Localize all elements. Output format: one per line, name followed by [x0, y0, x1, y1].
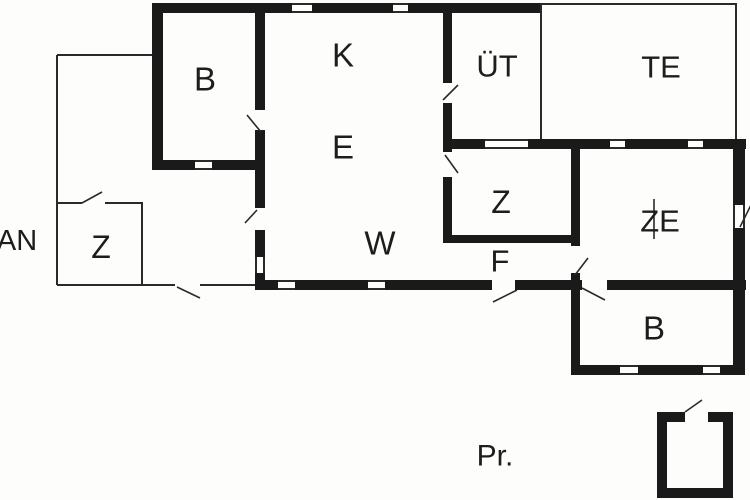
- wall: [657, 412, 667, 498]
- room-label-e: E: [332, 129, 354, 166]
- wall: [255, 3, 265, 290]
- door-opening: [443, 152, 452, 177]
- room-label-annex-z: Z: [91, 229, 111, 265]
- room-label-b-bottomright: B: [643, 310, 665, 347]
- wall: [733, 139, 745, 375]
- room-label-z-inner: Z: [491, 184, 511, 220]
- door-opening: [492, 280, 515, 290]
- wall: [723, 412, 733, 498]
- floorplan-svg: ANZBKEWÜTTEZFZEBPr.: [0, 0, 750, 500]
- room-label-w: W: [364, 225, 396, 262]
- room-label-ut: ÜT: [476, 49, 517, 84]
- door-opening: [582, 280, 607, 290]
- floorplan-canvas: ANZBKEWÜTTEZFZEBPr.: [0, 0, 750, 500]
- room-label-k: K: [332, 37, 354, 74]
- room-label-te: TE: [641, 50, 681, 85]
- room-label-f: F: [491, 244, 510, 279]
- wall: [571, 290, 580, 375]
- room-label-b-topleft: B: [194, 61, 216, 98]
- wall: [657, 488, 733, 498]
- room-label-annex: AN: [0, 225, 37, 257]
- wall: [443, 235, 580, 243]
- outdoor-label-pr: Pr.: [477, 440, 514, 473]
- wall: [443, 3, 452, 148]
- room-label-ze: ZE: [640, 204, 680, 239]
- wall: [152, 3, 542, 13]
- door-opening: [685, 412, 708, 423]
- wall: [152, 3, 163, 170]
